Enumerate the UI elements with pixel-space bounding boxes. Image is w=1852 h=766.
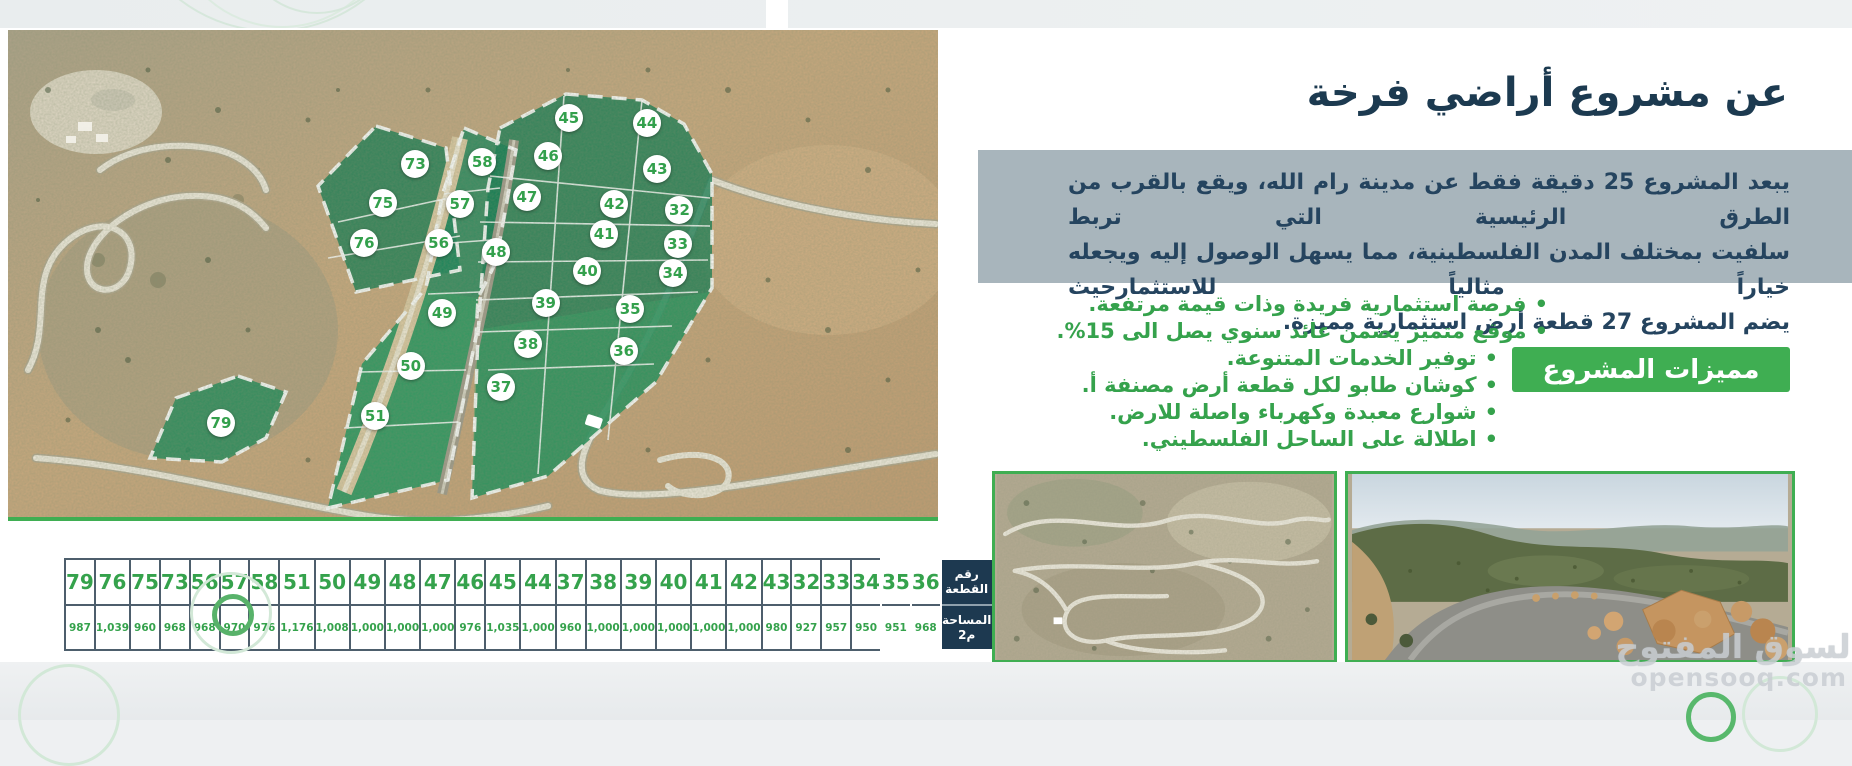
plot-number-cell: 36 xyxy=(912,560,940,606)
plot-marker: 73 xyxy=(401,150,429,178)
plot-number-cell: 43 xyxy=(763,560,791,606)
area-cell: 1,035 xyxy=(486,606,519,649)
feature-item: كوشان طابو لكل قطعة أرض مصنفة أ. xyxy=(1056,372,1548,399)
plot-marker: 75 xyxy=(369,189,397,217)
plot-marker: 39 xyxy=(532,289,560,317)
plot-number-cell: 42 xyxy=(727,560,760,606)
table-column: 451,035 xyxy=(486,560,519,649)
table-header-plot-number: رقم القطعة xyxy=(942,560,992,606)
plot-marker: 79 xyxy=(207,409,235,437)
area-cell: 1,000 xyxy=(657,606,690,649)
description-line: يبعد المشروع 25 دقيقة فقط عن مدينة رام ا… xyxy=(1068,165,1790,235)
plot-marker: 44 xyxy=(633,109,661,137)
plot-marker: 45 xyxy=(555,104,583,132)
area-cell: 950 xyxy=(852,606,880,649)
truck xyxy=(1054,617,1063,624)
plot-number-cell: 73 xyxy=(161,560,189,606)
plot-marker: 50 xyxy=(397,352,425,380)
table-column: 411,000 xyxy=(692,560,725,649)
table-column: 35951 xyxy=(882,560,910,649)
area-cell: 987 xyxy=(66,606,94,649)
feature-item: فرصة استثمارية فريدة وذات قيمة مرتفعة. xyxy=(1056,291,1548,318)
area-cell: 1,008 xyxy=(316,606,349,649)
photo-landscape-illustration xyxy=(1348,474,1792,660)
plot-number-cell: 39 xyxy=(622,560,655,606)
area-cell: 927 xyxy=(792,606,820,649)
area-cell: 951 xyxy=(882,606,910,649)
plot-marker: 36 xyxy=(610,337,638,365)
table-column: 511,176 xyxy=(280,560,313,649)
area-cell: 960 xyxy=(557,606,585,649)
table-column: 391,000 xyxy=(622,560,655,649)
plot-number-cell: 40 xyxy=(657,560,690,606)
top-decor-strip xyxy=(0,0,1852,28)
photo-aerial-illustration xyxy=(995,474,1334,660)
brochure-page: { "header": { "title": "عن مشروع أراضي ف… xyxy=(0,0,1852,720)
area-cell: 1,000 xyxy=(587,606,620,649)
area-cell: 1,000 xyxy=(622,606,655,649)
plot-marker: 42 xyxy=(600,190,628,218)
table-column: 46976 xyxy=(456,560,484,649)
plot-marker: 47 xyxy=(513,183,541,211)
table-column: 73968 xyxy=(161,560,189,649)
photo-site-landscape xyxy=(1345,471,1795,663)
plot-marker: 35 xyxy=(616,295,644,323)
table-column: 481,000 xyxy=(386,560,419,649)
plot-number-cell: 35 xyxy=(882,560,910,606)
table-column: 43980 xyxy=(763,560,791,649)
plot-marker: 46 xyxy=(534,142,562,170)
feature-item: اطلالة على الساحل الفلسطيني. xyxy=(1056,426,1548,453)
plot-number-cell: 45 xyxy=(486,560,519,606)
table-column: 761,039 xyxy=(96,560,129,649)
plot-marker: 32 xyxy=(665,196,693,224)
plot-number-cell: 44 xyxy=(521,560,554,606)
plot-number-cell: 50 xyxy=(316,560,349,606)
decorative-circle xyxy=(1686,692,1736,742)
aerial-map: 4544735846437557474232765648413340344939… xyxy=(8,30,938,521)
plot-number-cell: 51 xyxy=(280,560,313,606)
plot-marker: 43 xyxy=(643,155,671,183)
table-column: 421,000 xyxy=(727,560,760,649)
feature-item: شوارع معبدة وكهرباء واصلة للارض. xyxy=(1056,399,1548,426)
plot-number-cell: 46 xyxy=(456,560,484,606)
plot-number-cell: 37 xyxy=(557,560,585,606)
area-cell: 960 xyxy=(131,606,159,649)
table-column: 79987 xyxy=(66,560,94,649)
feature-item: موقع متميز يضمن عائد سنوي يصل الى 15%. xyxy=(1056,318,1548,345)
plot-marker: 38 xyxy=(514,330,542,358)
table-column: 33957 xyxy=(822,560,850,649)
area-cell: 1,000 xyxy=(727,606,760,649)
plot-number-cell: 76 xyxy=(96,560,129,606)
plot-marker: 76 xyxy=(350,229,378,257)
plot-marker: 58 xyxy=(468,148,496,176)
plot-marker: 37 xyxy=(487,373,515,401)
decorative-circle xyxy=(212,594,254,636)
plot-marker: 33 xyxy=(664,230,692,258)
plot-number-cell: 48 xyxy=(386,560,419,606)
plot-number-cell: 34 xyxy=(852,560,880,606)
table-column: 34950 xyxy=(852,560,880,649)
area-cell: 957 xyxy=(822,606,850,649)
decorative-circle xyxy=(18,664,120,766)
area-cell: 968 xyxy=(161,606,189,649)
plot-number-cell: 49 xyxy=(351,560,384,606)
area-cell: 980 xyxy=(763,606,791,649)
area-cell: 1,000 xyxy=(692,606,725,649)
table-column: 75960 xyxy=(131,560,159,649)
plot-number-cell: 38 xyxy=(587,560,620,606)
features-list: فرصة استثمارية فريدة وذات قيمة مرتفعة.مو… xyxy=(1056,291,1548,453)
plot-marker: 48 xyxy=(482,238,510,266)
area-cell: 976 xyxy=(456,606,484,649)
plot-number-cell: 75 xyxy=(131,560,159,606)
decorative-circle xyxy=(1742,676,1818,752)
plot-number-cell: 41 xyxy=(692,560,725,606)
table-column: 37960 xyxy=(557,560,585,649)
bottom-decor-strip xyxy=(0,662,1852,720)
area-cell: 1,000 xyxy=(521,606,554,649)
area-cell: 1,039 xyxy=(96,606,129,649)
table-column: 491,000 xyxy=(351,560,384,649)
plot-marker: 51 xyxy=(361,402,389,430)
area-cell: 1,176 xyxy=(280,606,313,649)
plots-table: 79987761,0397596073968569685797058976511… xyxy=(64,558,880,651)
table-column: 441,000 xyxy=(521,560,554,649)
area-cell: 1,000 xyxy=(351,606,384,649)
plot-number-cell: 33 xyxy=(822,560,850,606)
plot-marker: 34 xyxy=(659,259,687,287)
project-description-box: يبعد المشروع 25 دقيقة فقط عن مدينة رام ا… xyxy=(978,150,1852,283)
photo-site-aerial xyxy=(992,471,1337,663)
table-column: 401,000 xyxy=(657,560,690,649)
plot-marker: 41 xyxy=(590,220,618,248)
area-cell: 1,000 xyxy=(421,606,454,649)
plot-marker: 49 xyxy=(428,299,456,327)
plot-marker: 57 xyxy=(446,190,474,218)
table-column: 32927 xyxy=(792,560,820,649)
plot-number-cell: 47 xyxy=(421,560,454,606)
area-cell: 968 xyxy=(912,606,940,649)
map-illustration xyxy=(8,30,938,517)
table-column: 471,000 xyxy=(421,560,454,649)
table-column: 36968 xyxy=(912,560,940,649)
table-column: 501,008 xyxy=(316,560,349,649)
plot-marker: 56 xyxy=(425,229,453,257)
feature-item: توفير الخدمات المتنوعة. xyxy=(1056,345,1548,372)
features-banner: مميزات المشروع xyxy=(1512,347,1790,392)
table-header: رقم القطعة المساحة م2 xyxy=(942,560,992,649)
decor-notch xyxy=(766,0,788,28)
table-column: 381,000 xyxy=(587,560,620,649)
table-header-area: المساحة م2 xyxy=(942,606,992,649)
plot-number-cell: 32 xyxy=(792,560,820,606)
plot-marker: 40 xyxy=(573,257,601,285)
plot-number-cell: 79 xyxy=(66,560,94,606)
page-title: عن مشروع أراضي فرخة xyxy=(1307,70,1788,116)
area-cell: 1,000 xyxy=(386,606,419,649)
